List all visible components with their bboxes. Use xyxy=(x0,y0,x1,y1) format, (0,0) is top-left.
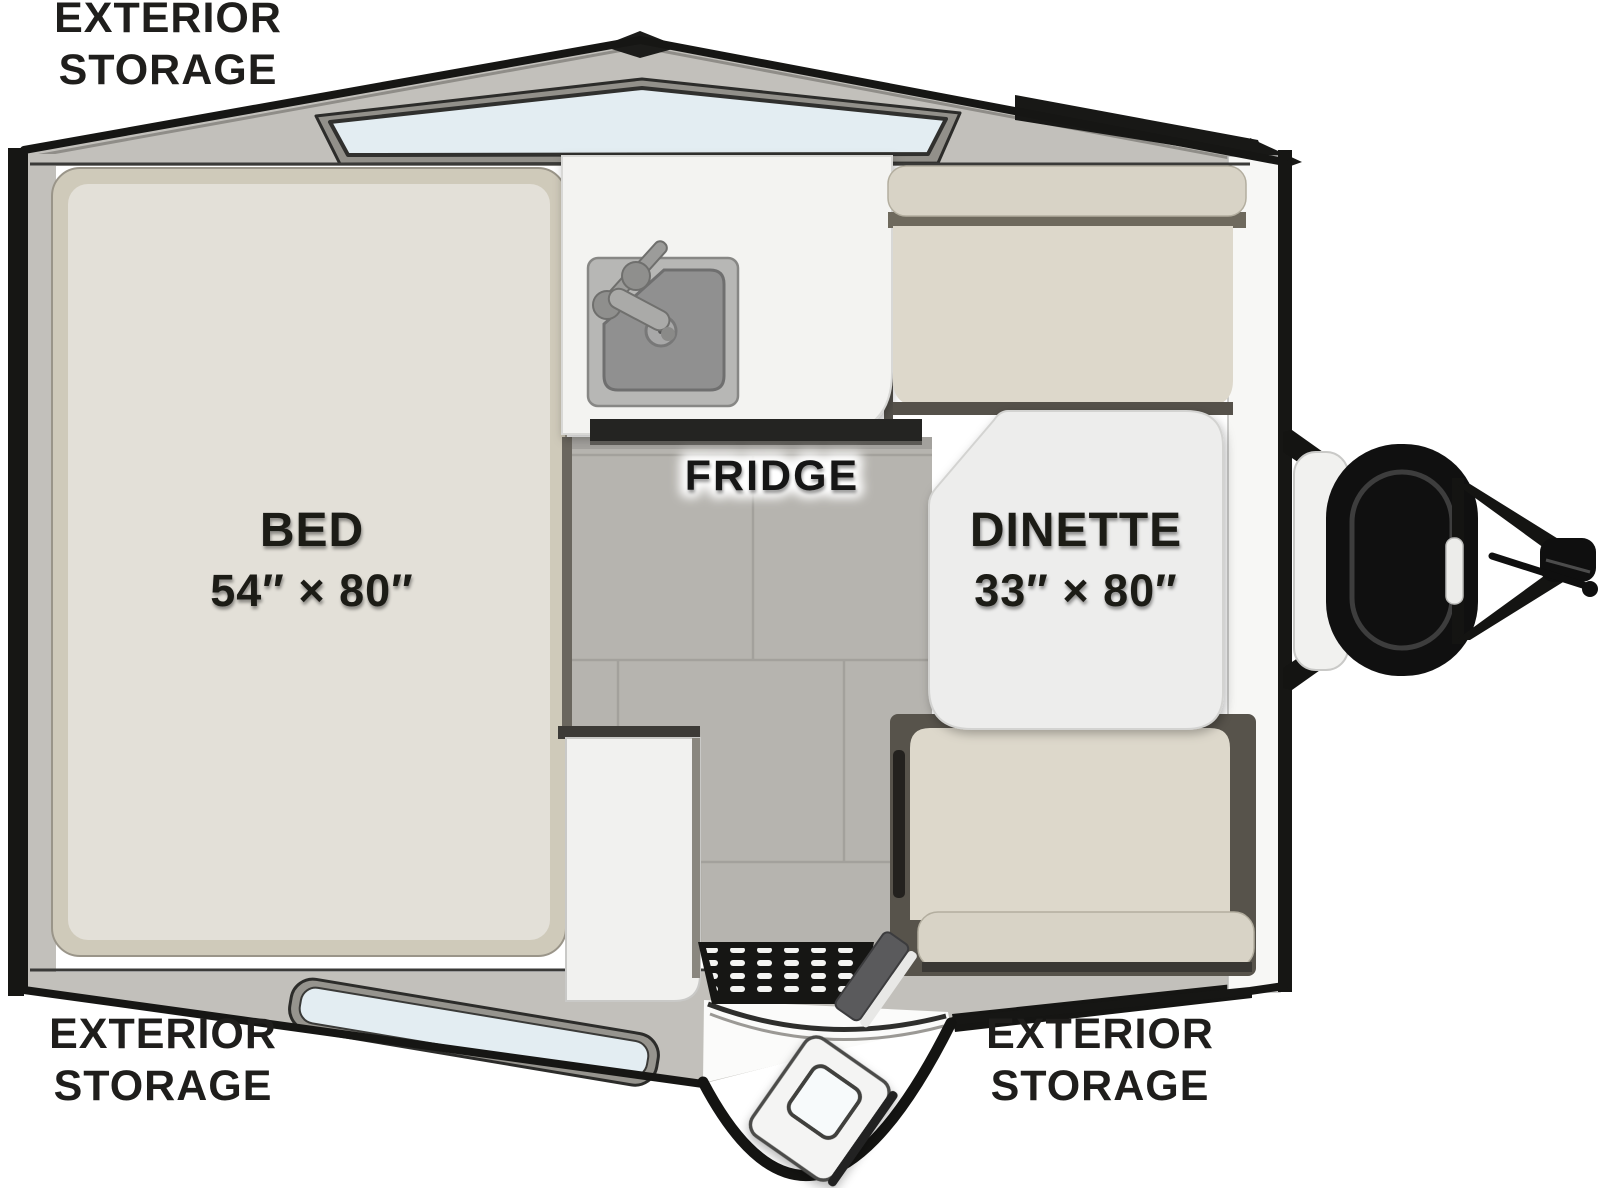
fridge-unit xyxy=(590,419,922,444)
fridge-unit-base xyxy=(590,441,922,445)
bed-dimensions: 54″ × 80″ xyxy=(210,565,414,616)
bed xyxy=(52,168,566,956)
storage-top-left-line1: EXTERIOR xyxy=(54,0,282,42)
latch-ball xyxy=(1582,581,1598,597)
storage-bottom-right-line1: EXTERIOR xyxy=(986,1010,1214,1058)
dinette-dimensions: 33″ × 80″ xyxy=(974,565,1178,616)
dinette-bench-top xyxy=(888,166,1246,415)
trailer-tongue xyxy=(1283,430,1598,690)
label-exterior-storage-bottom-right: EXTERIOR STORAGE xyxy=(986,1010,1214,1110)
galley-left-divider xyxy=(562,437,572,737)
tongue-jack xyxy=(1446,538,1463,604)
bed-name: BED xyxy=(260,504,364,557)
storage-bottom-right-line2: STORAGE xyxy=(991,1062,1210,1110)
floorplan-canvas: EXTERIOR STORAGE EXTERIOR STORAGE EXTERI… xyxy=(0,0,1600,1188)
label-fridge: FRIDGE FRIDGE xyxy=(685,452,859,500)
dinette-name: DINETTE xyxy=(970,504,1182,557)
dinette-bench-bottom xyxy=(890,714,1256,976)
storage-bottom-left-line2: STORAGE xyxy=(54,1062,273,1110)
faucet-spout-tip xyxy=(661,327,675,341)
storage-bottom-left-line1: EXTERIOR xyxy=(49,1010,277,1058)
label-exterior-storage-top-left: EXTERIOR STORAGE xyxy=(54,0,282,94)
label-exterior-storage-bottom-left: EXTERIOR STORAGE xyxy=(49,1010,277,1110)
fridge-label: FRIDGE xyxy=(685,452,859,500)
entry-mat-holes xyxy=(706,948,864,998)
storage-top-left-line2: STORAGE xyxy=(59,46,278,94)
floorplan-page: EXTERIOR STORAGE EXTERIOR STORAGE EXTERI… xyxy=(0,0,1600,1188)
sink xyxy=(588,239,738,406)
wardrobe-cabinet xyxy=(558,726,700,1001)
